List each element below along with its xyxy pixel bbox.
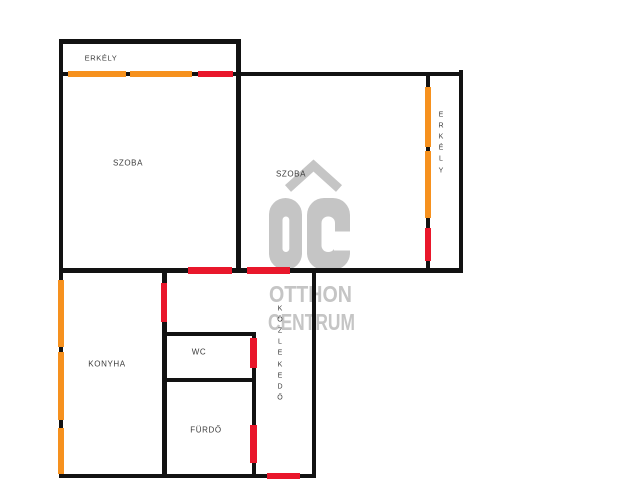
room-labels-layer: ERKÉLYSZOBASZOBAERKÉLYKONYHAWCFÜRDŐKÖZLE… bbox=[0, 0, 625, 500]
room-label-erkely-top: ERKÉLY bbox=[85, 54, 118, 63]
room-label-kozlekedo: KÖZLEKEDŐ bbox=[277, 303, 282, 404]
floorplan-canvas: OTTHON CENTRUM ERKÉLYSZOBASZOBAERKÉLYKON… bbox=[0, 0, 625, 500]
room-label-szoba-left: SZOBA bbox=[113, 159, 143, 168]
room-label-erkely-right: ERKÉLY bbox=[438, 109, 443, 176]
room-label-wc: WC bbox=[192, 348, 207, 357]
room-label-furdo: FÜRDŐ bbox=[190, 426, 221, 435]
room-label-konyha: KONYHA bbox=[88, 360, 125, 369]
room-label-szoba-right: SZOBA bbox=[276, 170, 306, 179]
